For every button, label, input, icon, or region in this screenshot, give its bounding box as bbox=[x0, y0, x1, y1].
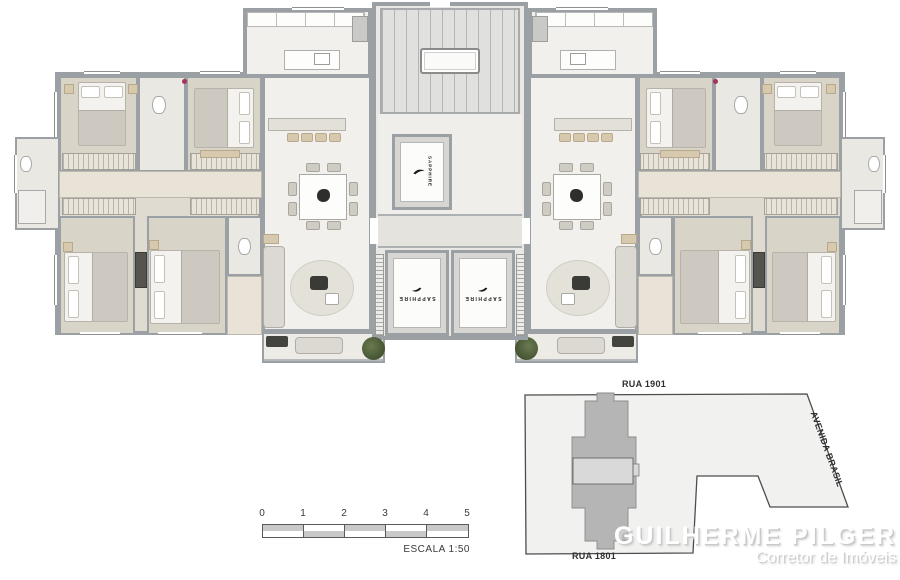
side-table bbox=[263, 234, 279, 244]
scale-bar: 0 1 2 3 4 5 ESCALA 1:50 bbox=[262, 508, 468, 558]
scale-label: ESCALA 1:50 bbox=[403, 544, 470, 555]
terrace-sofa bbox=[295, 337, 343, 354]
double-bed bbox=[64, 252, 128, 322]
scale-bar-segments bbox=[262, 524, 469, 538]
realtor-name: GUILHERME PILGER bbox=[614, 522, 896, 551]
realtor-subtitle: Corretor de Imóveis bbox=[614, 549, 896, 567]
coffee-table bbox=[561, 293, 575, 305]
dining-chair bbox=[603, 182, 612, 196]
dining-chair bbox=[306, 221, 320, 230]
dining-chair bbox=[580, 221, 594, 230]
sofa bbox=[615, 246, 637, 328]
dining-chair bbox=[603, 202, 612, 216]
double-bed bbox=[772, 252, 836, 322]
realtor-watermark: GUILHERME PILGER Corretor de Imóveis bbox=[614, 522, 896, 567]
window bbox=[698, 332, 742, 337]
wardrobe bbox=[190, 198, 260, 215]
window bbox=[52, 255, 57, 305]
core-hall bbox=[378, 214, 522, 248]
dining-chair bbox=[327, 163, 341, 172]
flower-decor bbox=[713, 79, 718, 84]
table-centerpiece bbox=[317, 189, 330, 202]
nightstand bbox=[762, 84, 772, 94]
scale-tick: 4 bbox=[423, 508, 429, 519]
toilet bbox=[649, 238, 662, 255]
bar-counter bbox=[268, 118, 346, 131]
window bbox=[84, 69, 120, 74]
nightstand bbox=[827, 242, 837, 252]
window bbox=[843, 92, 848, 137]
elevator-cab: SAPPHIRE bbox=[400, 142, 444, 202]
double-bed bbox=[150, 250, 220, 324]
table-centerpiece bbox=[570, 189, 583, 202]
bar-stool bbox=[329, 133, 341, 142]
scale-tick: 1 bbox=[300, 508, 306, 519]
bar-stool bbox=[587, 133, 599, 142]
coffee-table bbox=[325, 293, 339, 305]
street-label-bottom: RUA 1801 bbox=[572, 551, 616, 561]
bar-stool bbox=[301, 133, 313, 142]
nightstand bbox=[149, 240, 159, 250]
street-label-top: RUA 1901 bbox=[622, 379, 666, 389]
door-opening bbox=[522, 218, 530, 244]
double-bed bbox=[680, 250, 750, 324]
dining-chair bbox=[327, 221, 341, 230]
wardrobe-cabinet bbox=[135, 252, 147, 288]
nightstand bbox=[128, 84, 138, 94]
elevator: SAPPHIRE bbox=[385, 250, 449, 336]
corridor bbox=[59, 171, 262, 198]
shower bbox=[18, 190, 46, 224]
coffee-table bbox=[310, 276, 328, 290]
bar-stool bbox=[559, 133, 571, 142]
dining-chair bbox=[542, 202, 551, 216]
plant bbox=[362, 337, 385, 360]
bar-stool bbox=[287, 133, 299, 142]
refrigerator bbox=[532, 16, 548, 42]
door-opening bbox=[430, 0, 450, 7]
wardrobe bbox=[62, 198, 136, 215]
bar-stool bbox=[573, 133, 585, 142]
window bbox=[200, 69, 240, 74]
window bbox=[780, 332, 820, 337]
sofa bbox=[263, 246, 285, 328]
bed-bench bbox=[200, 150, 240, 158]
entry-hall bbox=[638, 276, 673, 335]
toilet bbox=[20, 156, 32, 172]
toilet bbox=[734, 96, 748, 114]
scale-tick: 0 bbox=[259, 508, 265, 519]
side-table bbox=[621, 234, 637, 244]
window bbox=[12, 155, 17, 193]
floor-plan-sheet: SAPPHIRE SAPPHIRE SAPPHIRE bbox=[0, 0, 900, 580]
kitchen-sink bbox=[314, 53, 330, 65]
shaft-vent bbox=[375, 254, 384, 336]
corridor bbox=[638, 171, 841, 198]
bed-bench bbox=[660, 150, 700, 158]
refrigerator bbox=[352, 16, 368, 42]
double-bed bbox=[194, 88, 254, 148]
stair-landing bbox=[420, 48, 480, 74]
bird-icon bbox=[477, 286, 489, 294]
dining-chair bbox=[288, 202, 297, 216]
kitchen-sink bbox=[570, 53, 586, 65]
dining-chair bbox=[580, 163, 594, 172]
bathroom bbox=[714, 76, 762, 172]
nightstand bbox=[63, 242, 73, 252]
bathroom bbox=[138, 76, 186, 172]
door-opening bbox=[370, 218, 378, 244]
toilet bbox=[238, 238, 251, 255]
kitchen-island bbox=[284, 50, 340, 70]
elevator-brand-logo: SAPPHIRE bbox=[398, 286, 436, 301]
wardrobe bbox=[764, 198, 838, 215]
flower-decor bbox=[182, 79, 187, 84]
elevator-brand-logo: SAPPHIRE bbox=[464, 286, 502, 301]
window bbox=[883, 155, 888, 193]
bird-icon bbox=[412, 167, 426, 176]
window bbox=[780, 69, 816, 74]
shower bbox=[854, 190, 882, 224]
stairwell bbox=[380, 8, 520, 114]
wardrobe-cabinet bbox=[753, 252, 765, 288]
elevator-brand-text: SAPPHIRE bbox=[428, 156, 433, 187]
bar-counter bbox=[554, 118, 632, 131]
window bbox=[158, 332, 202, 337]
scale-tick: 3 bbox=[382, 508, 388, 519]
nightstand bbox=[741, 240, 751, 250]
highlighted-floor bbox=[573, 458, 633, 484]
nightstand bbox=[64, 84, 74, 94]
bird-icon bbox=[411, 286, 423, 294]
dining-chair bbox=[306, 163, 320, 172]
toilet bbox=[868, 156, 880, 172]
double-bed bbox=[78, 82, 126, 146]
bar-stool bbox=[315, 133, 327, 142]
double-bed bbox=[774, 82, 822, 146]
window bbox=[843, 255, 848, 305]
dining-chair bbox=[288, 182, 297, 196]
kitchen-cabinets bbox=[535, 12, 653, 27]
entry-hall bbox=[227, 276, 262, 335]
toilet bbox=[152, 96, 166, 114]
elevator-cab: SAPPHIRE bbox=[393, 258, 441, 328]
wardrobe bbox=[62, 153, 136, 170]
wardrobe bbox=[764, 153, 838, 170]
scale-tick: 5 bbox=[464, 508, 470, 519]
window bbox=[660, 69, 700, 74]
elevator-brand-text: SAPPHIRE bbox=[464, 295, 502, 301]
wardrobe bbox=[640, 198, 710, 215]
elevator: SAPPHIRE bbox=[451, 250, 515, 336]
dining-chair bbox=[559, 221, 573, 230]
dining-chair bbox=[559, 163, 573, 172]
tv-console bbox=[266, 336, 288, 347]
nightstand bbox=[826, 84, 836, 94]
double-bed bbox=[646, 88, 706, 148]
scale-tick: 2 bbox=[341, 508, 347, 519]
kitchen-cabinets bbox=[247, 12, 365, 27]
terrace-sofa bbox=[557, 337, 605, 354]
bar-stool bbox=[601, 133, 613, 142]
window bbox=[556, 5, 608, 10]
coffee-table bbox=[572, 276, 590, 290]
dining-chair bbox=[542, 182, 551, 196]
elevator-brand-text: SAPPHIRE bbox=[398, 295, 436, 301]
footprint-wing bbox=[633, 464, 639, 476]
shaft-vent bbox=[516, 254, 525, 336]
window bbox=[80, 332, 120, 337]
elevator-cab: SAPPHIRE bbox=[459, 258, 507, 328]
service-elevator: SAPPHIRE bbox=[392, 134, 452, 210]
dining-chair bbox=[349, 182, 358, 196]
plant bbox=[515, 337, 538, 360]
window bbox=[292, 5, 344, 10]
window bbox=[52, 92, 57, 137]
kitchen-island bbox=[560, 50, 616, 70]
dining-chair bbox=[349, 202, 358, 216]
tv-console bbox=[612, 336, 634, 347]
elevator-brand-logo: SAPPHIRE bbox=[412, 156, 433, 187]
